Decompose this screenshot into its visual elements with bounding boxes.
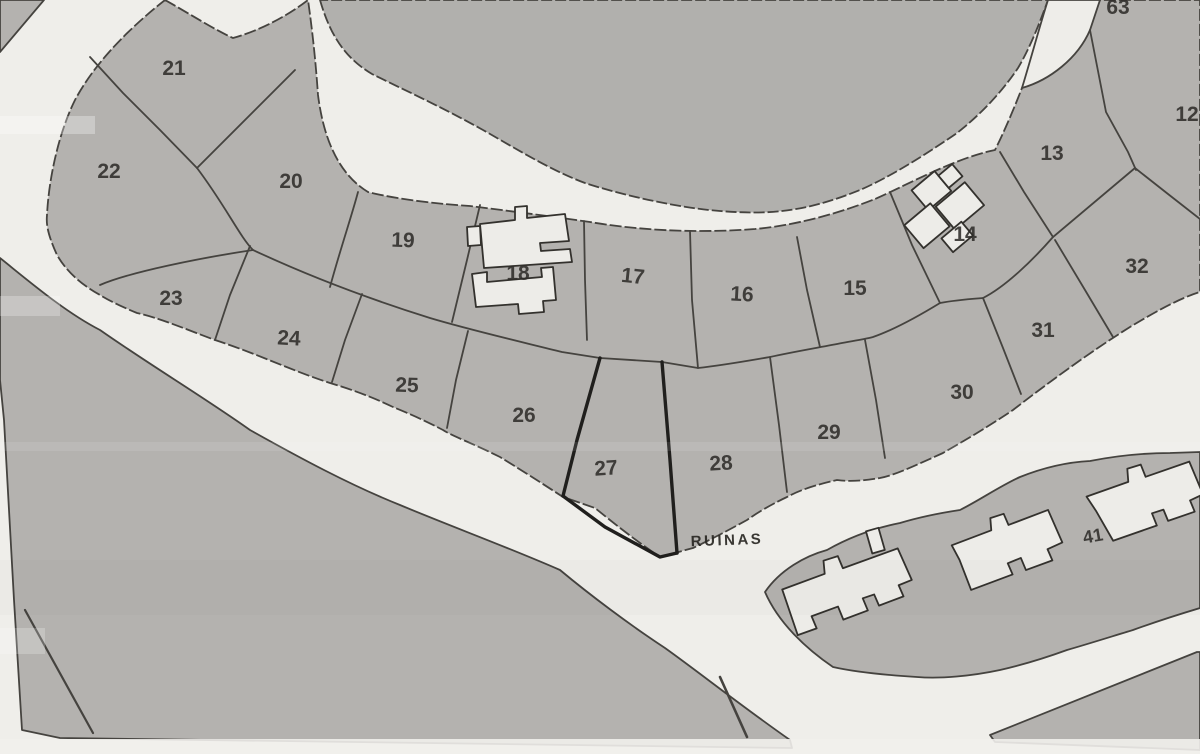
cadastral-parcel-map: 12 13 14 15 16 17 18 19 20 21 22 23 24 2… <box>0 0 1200 754</box>
parcel-label-26: 26 <box>512 404 535 427</box>
parcel-label-12: 12 <box>1175 103 1198 126</box>
parcel-label-15: 15 <box>843 277 867 300</box>
parcel-label-29: 29 <box>817 421 840 444</box>
parcel-label-25: 25 <box>395 374 419 398</box>
scanned-map-page: 12 13 14 15 16 17 18 19 20 21 22 23 24 2… <box>0 0 1200 754</box>
parcel-label-31: 31 <box>1031 319 1055 342</box>
parcel-label-17: 17 <box>620 264 646 289</box>
parcel-label-27: 27 <box>594 456 619 481</box>
parcel-label-14: 14 <box>953 223 977 246</box>
parcel-label-41: 41 <box>1081 524 1104 547</box>
parcel-label-32: 32 <box>1125 255 1148 278</box>
land-areas <box>0 0 1200 750</box>
parcel-label-24: 24 <box>277 326 302 350</box>
parcel-label-13: 13 <box>1040 142 1063 165</box>
parcel-label-63: 63 <box>1106 0 1129 19</box>
top-left-corner-area <box>0 0 44 52</box>
parcel-label-18: 18 <box>506 262 530 285</box>
bottom-right-corner-area <box>990 652 1200 750</box>
parcel-label-23: 23 <box>159 287 182 310</box>
parcel-label-16: 16 <box>730 282 755 306</box>
parcel-label-20: 20 <box>279 170 302 193</box>
parcel-label-30: 30 <box>950 381 973 404</box>
parcel-label-28: 28 <box>709 451 734 475</box>
ruins-label: RUINAS <box>690 531 763 551</box>
parcel-label-21: 21 <box>162 57 186 80</box>
parcel-label-22: 22 <box>97 160 120 183</box>
parcel-label-19: 19 <box>391 229 415 253</box>
